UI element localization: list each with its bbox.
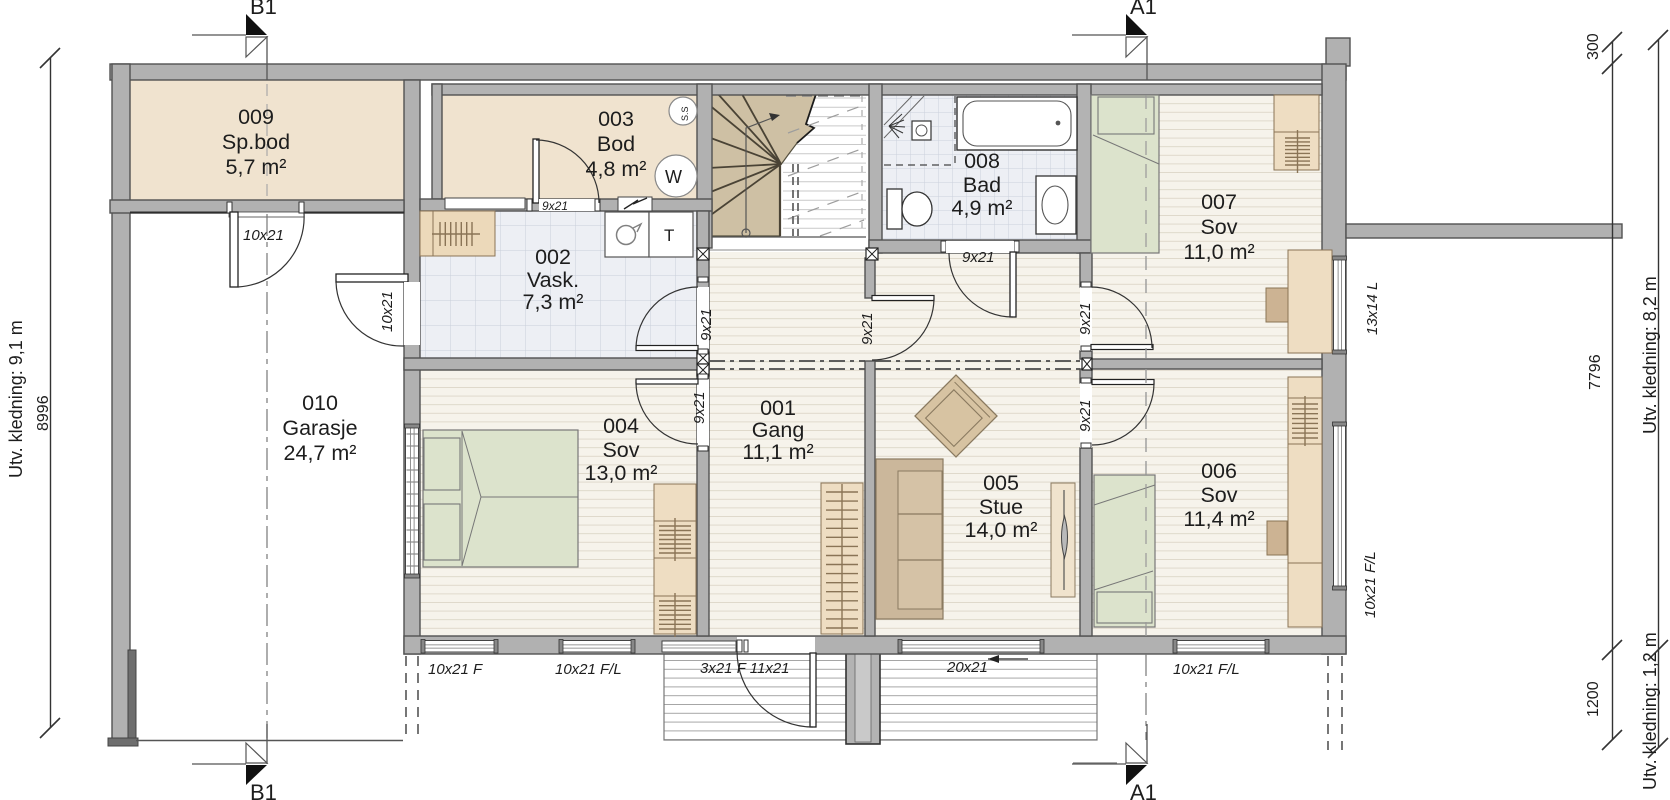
svg-text:9x21: 9x21: [1077, 302, 1094, 335]
svg-text:Sov: Sov: [602, 438, 639, 462]
svg-text:1200: 1200: [1585, 681, 1602, 717]
svg-text:9x21: 9x21: [859, 312, 876, 345]
svg-text:A1: A1: [1130, 0, 1157, 19]
svg-text:008: 008: [964, 149, 1000, 173]
svg-text:Bod: Bod: [597, 132, 635, 156]
svg-text:9x21: 9x21: [691, 391, 708, 424]
svg-text:9x21: 9x21: [962, 249, 995, 266]
svg-text:Gang: Gang: [752, 418, 805, 442]
svg-text:10x21: 10x21: [243, 227, 284, 244]
svg-text:Utv. kledning: 9,1 m: Utv. kledning: 9,1 m: [6, 320, 26, 478]
svg-text:Garasje: Garasje: [282, 416, 357, 440]
svg-text:7796: 7796: [1587, 354, 1604, 390]
svg-text:B1: B1: [250, 0, 277, 19]
svg-text:7,3 m²: 7,3 m²: [523, 290, 584, 314]
svg-text:W: W: [665, 167, 682, 187]
svg-text:S.S: S.S: [680, 106, 690, 121]
svg-text:13x14 L: 13x14 L: [1364, 282, 1381, 335]
svg-text:4,8 m²: 4,8 m²: [586, 157, 647, 181]
svg-text:11,1 m²: 11,1 m²: [742, 440, 813, 464]
svg-text:Sp.bod: Sp.bod: [222, 130, 290, 154]
svg-text:005: 005: [983, 471, 1019, 495]
svg-text:Utv. kledning: 1,2 m: Utv. kledning: 1,2 m: [1640, 632, 1660, 790]
svg-text:B1: B1: [250, 780, 277, 800]
svg-text:001: 001: [760, 396, 796, 420]
svg-text:007: 007: [1201, 190, 1237, 214]
svg-text:Bad: Bad: [963, 173, 1001, 197]
svg-text:9x21: 9x21: [1077, 399, 1094, 432]
svg-text:5,7 m²: 5,7 m²: [226, 155, 287, 179]
svg-text:002: 002: [535, 245, 571, 269]
svg-text:10x21 F/L: 10x21 F/L: [1173, 661, 1240, 678]
svg-text:20x21: 20x21: [946, 659, 988, 676]
svg-text:10x21 F/L: 10x21 F/L: [1362, 551, 1379, 618]
svg-text:10x21 F/L: 10x21 F/L: [555, 661, 622, 678]
svg-text:010: 010: [302, 391, 338, 415]
svg-text:9x21: 9x21: [698, 308, 715, 341]
svg-text:009: 009: [238, 105, 274, 129]
svg-text:10x21 F: 10x21 F: [428, 661, 483, 678]
svg-text:11,4 m²: 11,4 m²: [1183, 507, 1254, 531]
svg-text:10x21: 10x21: [379, 291, 396, 332]
svg-text:3x21 F 11x21: 3x21 F 11x21: [700, 660, 790, 677]
svg-text:Stue: Stue: [979, 495, 1023, 519]
svg-text:T: T: [664, 226, 674, 245]
svg-text:Utv. kledning: 8,2 m: Utv. kledning: 8,2 m: [1640, 276, 1660, 434]
svg-text:14,0 m²: 14,0 m²: [965, 518, 1038, 542]
svg-text:A1: A1: [1130, 780, 1157, 800]
svg-text:11,0 m²: 11,0 m²: [1183, 240, 1254, 264]
svg-text:4,9 m²: 4,9 m²: [952, 196, 1013, 220]
svg-text:9x21: 9x21: [542, 199, 568, 213]
svg-text:Sov: Sov: [1200, 483, 1237, 507]
svg-text:24,7 m²: 24,7 m²: [284, 441, 357, 465]
svg-text:8996: 8996: [35, 395, 52, 431]
svg-text:300: 300: [1585, 33, 1602, 60]
svg-text:Vask.: Vask.: [527, 268, 579, 292]
svg-text:006: 006: [1201, 459, 1237, 483]
svg-text:Sov: Sov: [1200, 215, 1237, 239]
svg-text:004: 004: [603, 414, 639, 438]
svg-text:13,0 m²: 13,0 m²: [585, 461, 658, 485]
svg-text:003: 003: [598, 107, 634, 131]
